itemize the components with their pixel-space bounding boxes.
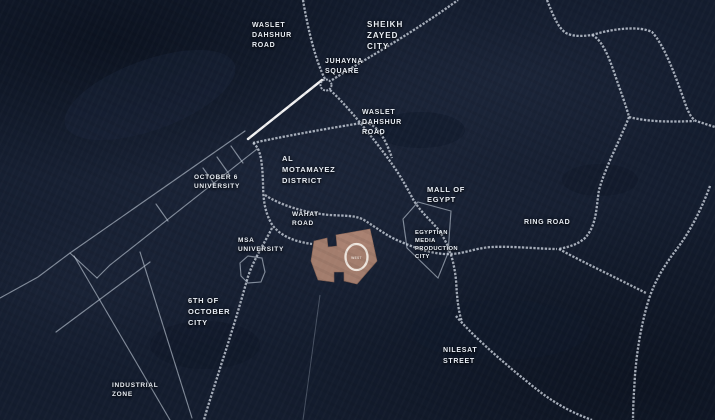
october6-university-corridor-inner <box>97 149 257 278</box>
terrain-texture <box>53 31 638 369</box>
label-wahat-road: WAHAT ROAD <box>292 210 319 228</box>
corridor-rung <box>217 157 229 174</box>
label-waslet-dahshur-road-north: WASLET DAHSHUR ROAD <box>252 21 292 51</box>
label-al-motamayez-district: AL MOTAMAYEZ DISTRICT <box>282 153 335 186</box>
label-egyptian-media-production-city: EGYPTIAN MEDIA PRODUCTION CITY <box>415 229 458 261</box>
corridor-rung <box>231 146 243 163</box>
road-below-site <box>303 295 320 420</box>
o-west-logo-text: WEST <box>351 256 361 260</box>
road-branch-southeast <box>559 249 646 293</box>
label-juhayna-square: JUHAYNA SQUARE <box>325 57 363 77</box>
msa-university-loop <box>240 256 265 283</box>
label-mall-of-egypt: MALL OF EGYPT <box>427 185 465 205</box>
road-right-edge <box>633 186 710 420</box>
label-waslet-dahshur-road-mid: WASLET DAHSHUR ROAD <box>362 108 402 138</box>
ring-road-north-entry <box>547 0 592 36</box>
october6-university-corridor-outer <box>0 131 245 298</box>
ring-road-loop-east <box>592 28 715 127</box>
label-nilesat-street: NILESAT STREET <box>443 345 477 367</box>
label-industrial-zone: INDUSTRIAL ZONE <box>112 381 158 399</box>
label-sheikh-zayed-city: SHEIKH ZAYED CITY <box>367 19 403 52</box>
ring-road-loop-connector <box>629 117 694 122</box>
label-msa-university: MSA UNIVERSITY <box>238 236 284 254</box>
road-north-approach <box>303 0 325 79</box>
label-6th-of-october-city: 6TH OF OCTOBER CITY <box>188 295 230 328</box>
ring-road-loop-west <box>592 35 629 117</box>
location-map: WEST WASLET DAHSHUR ROAD SHEIKH ZAYED CI… <box>0 0 715 420</box>
road-bright-segment <box>248 80 322 139</box>
label-october-6-university: OCTOBER 6 UNIVERSITY <box>194 173 240 191</box>
label-ring-road: RING ROAD <box>524 218 570 227</box>
juhayna-roundabout <box>321 80 332 91</box>
corridor-rung <box>156 204 168 221</box>
